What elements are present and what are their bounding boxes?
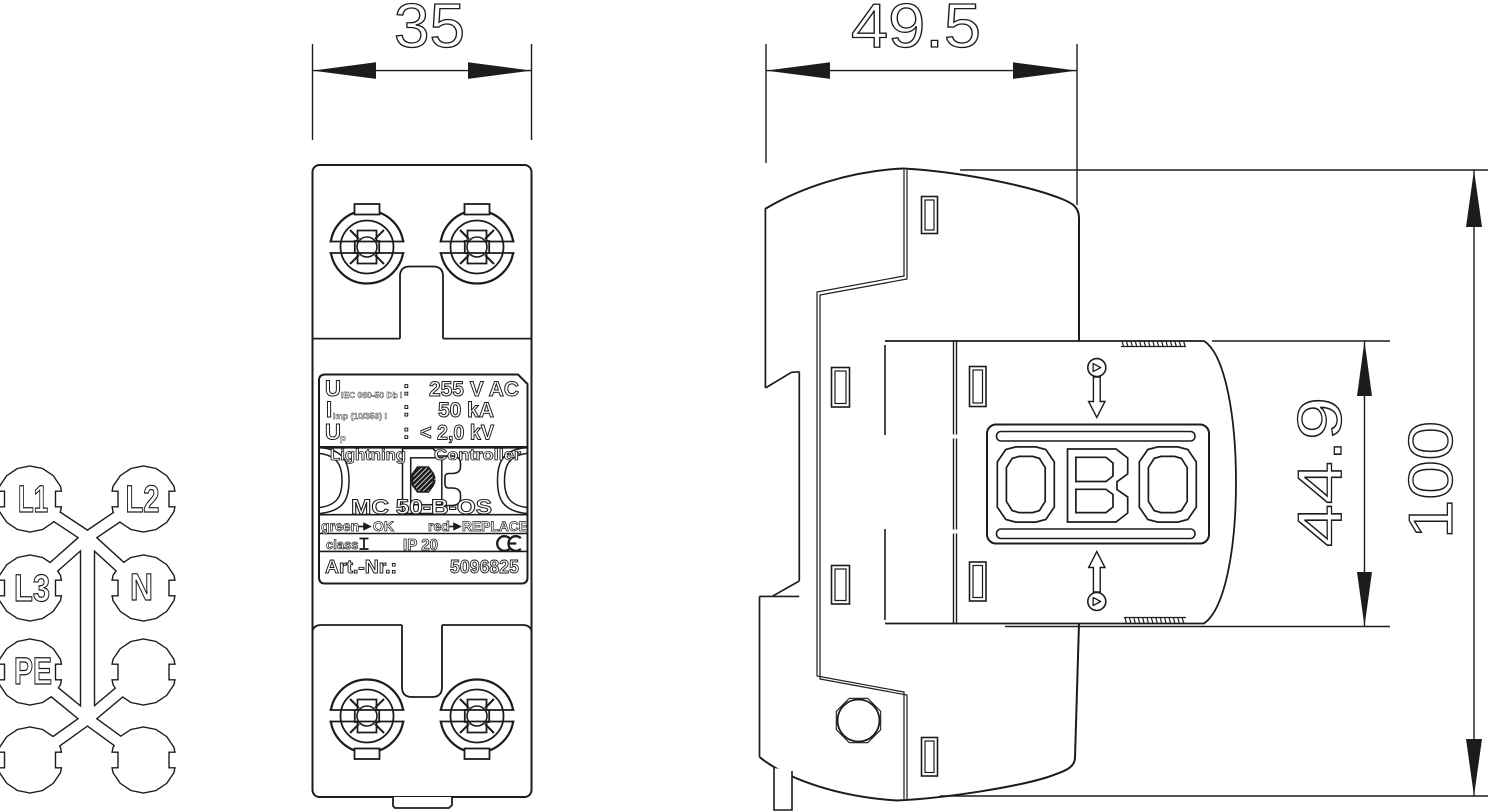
svg-text:PE: PE <box>14 651 52 693</box>
svg-text:P: P <box>340 435 346 445</box>
svg-text:35: 35 <box>394 0 465 61</box>
svg-text:Lightning: Lightning <box>330 447 406 464</box>
svg-text:MC 50-B-OS: MC 50-B-OS <box>351 496 492 519</box>
svg-text:I: I <box>326 397 332 422</box>
svg-text:L1: L1 <box>18 479 48 521</box>
svg-text:100: 100 <box>1397 421 1466 539</box>
svg-text:IEC 060-50 Db I: IEC 060-50 Db I <box>341 390 402 400</box>
svg-text:L3: L3 <box>14 568 50 610</box>
svg-text:255 V AC: 255 V AC <box>429 378 519 401</box>
svg-text:L2: L2 <box>126 479 160 521</box>
svg-text:U: U <box>325 420 341 445</box>
svg-text::: : <box>403 422 410 444</box>
svg-text::: : <box>403 378 410 400</box>
svg-text:Controller: Controller <box>434 447 521 464</box>
svg-text:red: red <box>428 518 450 534</box>
svg-text:class: class <box>326 537 359 552</box>
svg-text:N: N <box>130 567 153 609</box>
svg-text:REPLACE: REPLACE <box>462 519 528 534</box>
svg-text:5096825: 5096825 <box>450 557 519 577</box>
svg-text:OK: OK <box>373 518 394 534</box>
svg-text::: : <box>403 399 410 421</box>
svg-text:50 kA: 50 kA <box>438 399 494 422</box>
svg-text:Imp (10/350) I: Imp (10/350) I <box>333 411 387 421</box>
svg-text:green: green <box>321 518 359 534</box>
svg-text:< 2,0 kV: < 2,0 kV <box>420 422 494 445</box>
svg-text:49.5: 49.5 <box>851 0 981 61</box>
svg-text:44.9: 44.9 <box>1286 397 1355 547</box>
svg-text:IP 20: IP 20 <box>403 537 438 554</box>
svg-text:Art.-Nr.:: Art.-Nr.: <box>325 557 397 577</box>
